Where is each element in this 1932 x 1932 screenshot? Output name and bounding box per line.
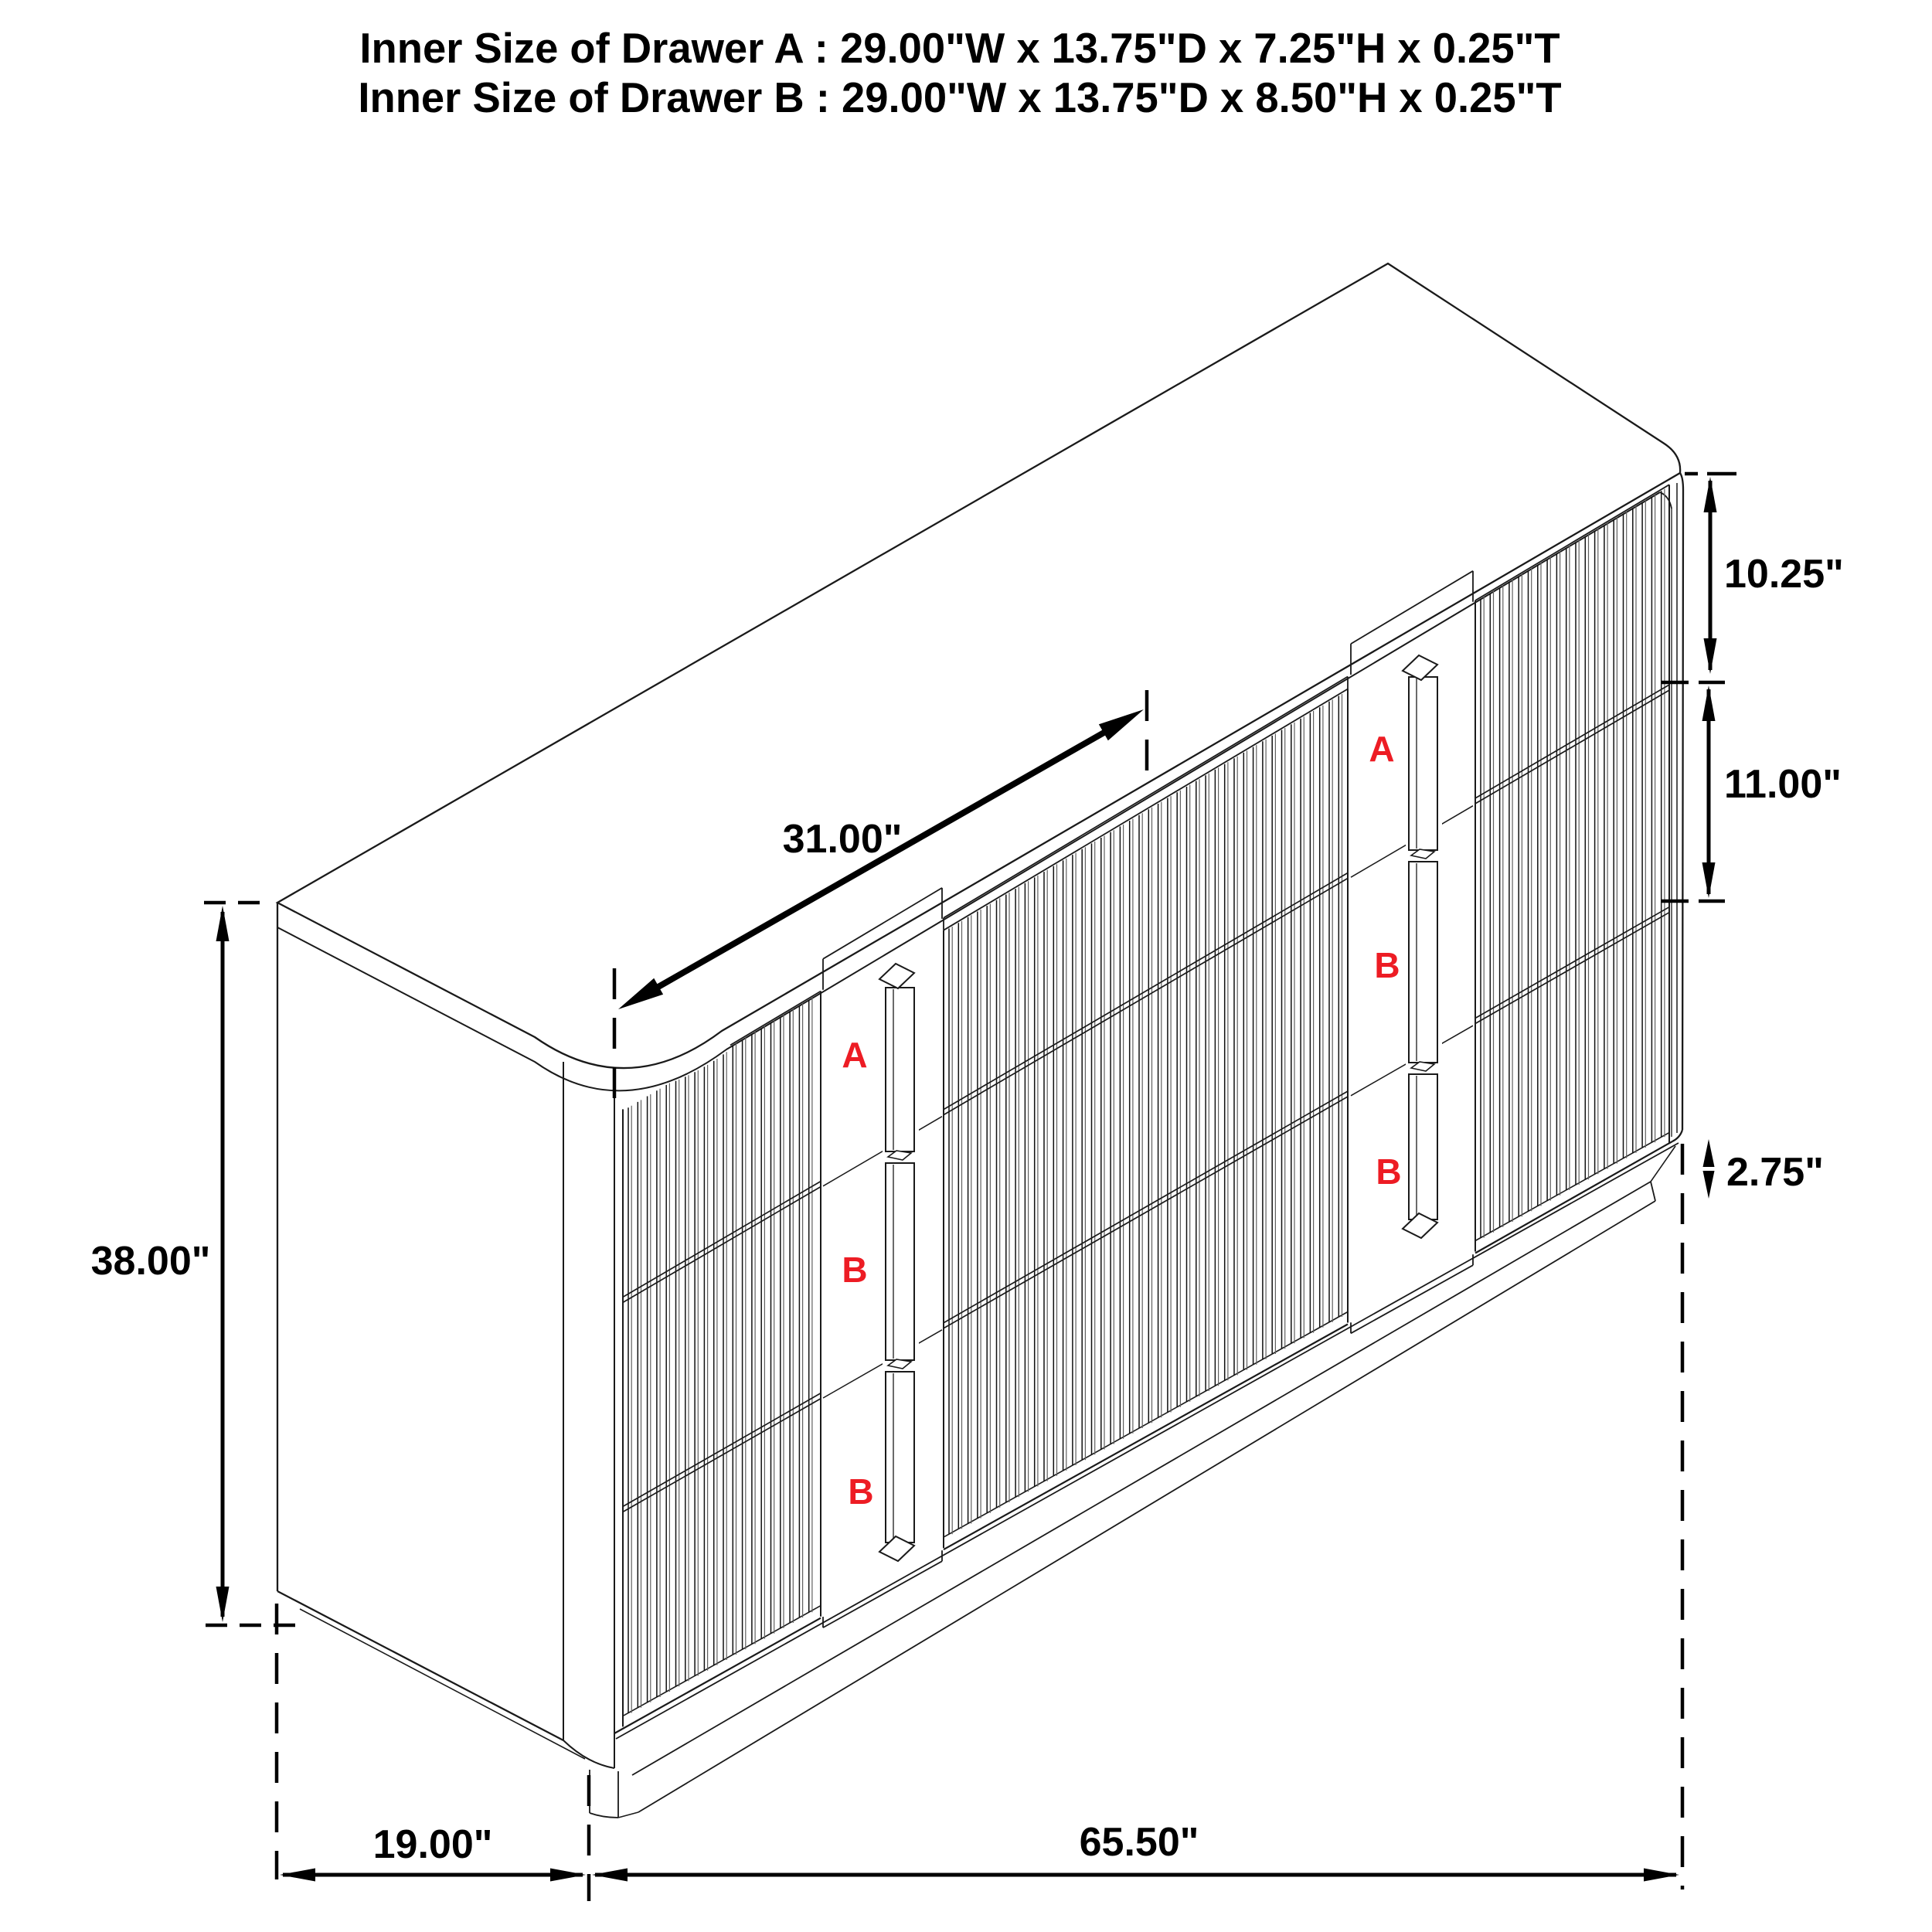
svg-text:10.25": 10.25" [1724, 552, 1844, 597]
svg-text:11.00": 11.00" [1724, 762, 1842, 807]
svg-text:65.50": 65.50" [1080, 1820, 1199, 1865]
svg-text:B: B [842, 1250, 867, 1290]
svg-text:Inner Size of Drawer B : 29.00: Inner Size of Drawer B : 29.00"W x 13.75… [358, 74, 1561, 121]
svg-text:19.00": 19.00" [373, 1822, 493, 1867]
svg-text:A: A [842, 1035, 867, 1075]
svg-text:2.75": 2.75" [1726, 1150, 1824, 1195]
svg-text:B: B [848, 1471, 873, 1512]
svg-text:B: B [1374, 945, 1400, 985]
svg-text:A: A [1369, 729, 1394, 769]
svg-text:38.00": 38.00" [91, 1239, 211, 1284]
svg-text:31.00": 31.00" [783, 817, 903, 862]
svg-text:Inner Size of Drawer A : 29.00: Inner Size of Drawer A : 29.00"W x 13.75… [359, 25, 1560, 72]
svg-text:B: B [1376, 1151, 1401, 1192]
